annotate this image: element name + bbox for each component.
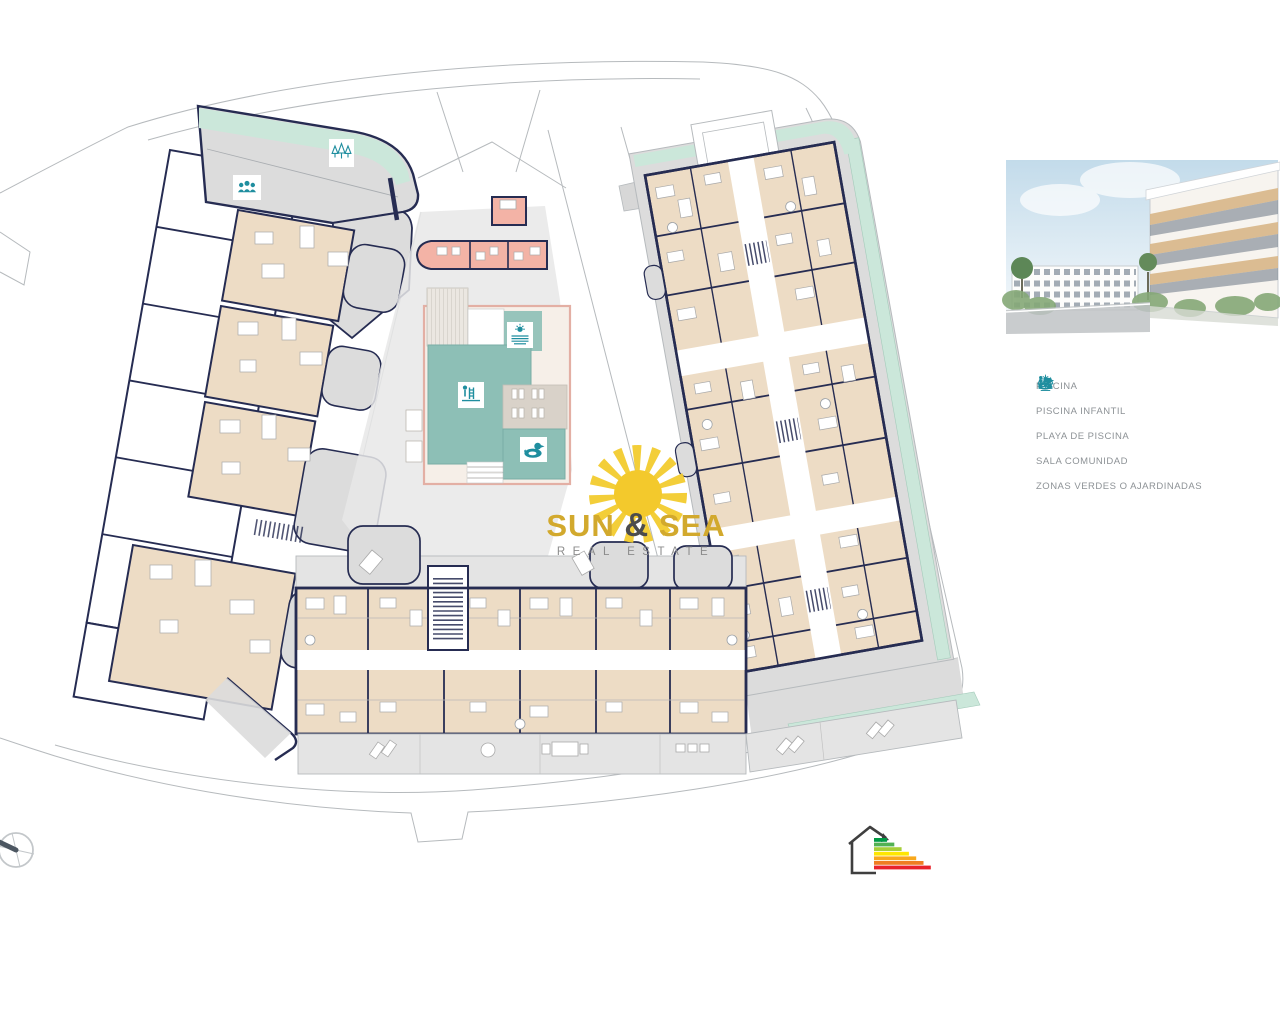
terrace-apron <box>298 734 746 774</box>
people-marker-box <box>233 175 261 200</box>
legend-label: PISCINA INFANTIL <box>1036 406 1126 417</box>
legend-label: PLAYA DE PISCINA <box>1036 431 1129 442</box>
site-plan-page: SUN & SEA REAL ESTATE PISCINA PISCINA IN… <box>0 0 1280 1024</box>
legend-item-piscina-infantil: PISCINA INFANTIL <box>1036 399 1272 424</box>
trees-icon <box>1036 374 1055 393</box>
building-rendering <box>1002 160 1280 334</box>
legend-label: SALA COMUNIDAD <box>1036 456 1128 467</box>
legend-item-zonas-verdes: ZONAS VERDES O AJARDINADAS <box>1036 474 1272 499</box>
legend-item-piscina: PISCINA <box>1036 374 1272 399</box>
legend-item-sala-comunidad: SALA COMUNIDAD <box>1036 449 1272 474</box>
pool-ladder-marker-box <box>458 382 484 408</box>
watermark-sun-icon <box>602 458 674 530</box>
legend-label: ZONAS VERDES O AJARDINADAS <box>1036 481 1202 492</box>
legend: PISCINA PISCINA INFANTIL PLAYA DE PISCIN… <box>1036 374 1272 499</box>
legend-item-playa-de-piscina: PLAYA DE PISCINA <box>1036 424 1272 449</box>
compass-icon <box>0 833 34 867</box>
site-plan-drawing <box>0 0 1280 1024</box>
energy-rating-icon <box>849 827 931 873</box>
